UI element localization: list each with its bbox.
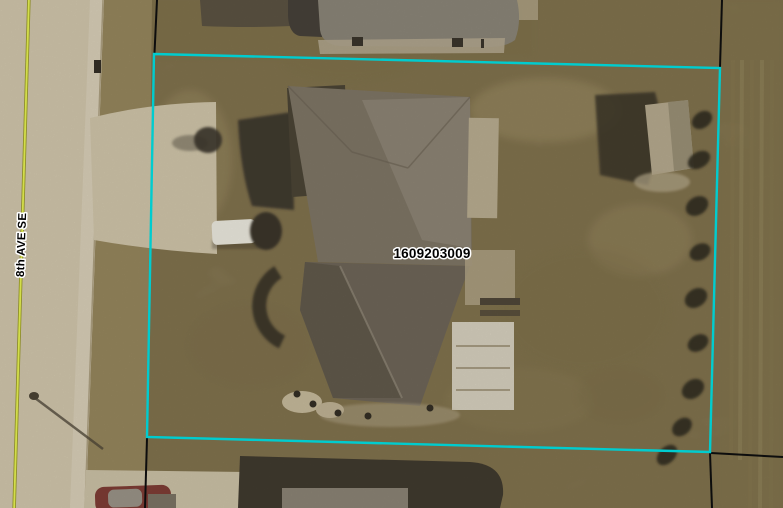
photo-grain: [0, 0, 783, 508]
street-name-label: 8th AVE SE: [15, 213, 29, 278]
gis-aerial-map-view[interactable]: 1609203009 8th AVE SE: [0, 0, 783, 508]
parcel-id-label: 1609203009: [393, 246, 470, 261]
aerial-imagery: 1609203009 8th AVE SE: [0, 0, 783, 508]
